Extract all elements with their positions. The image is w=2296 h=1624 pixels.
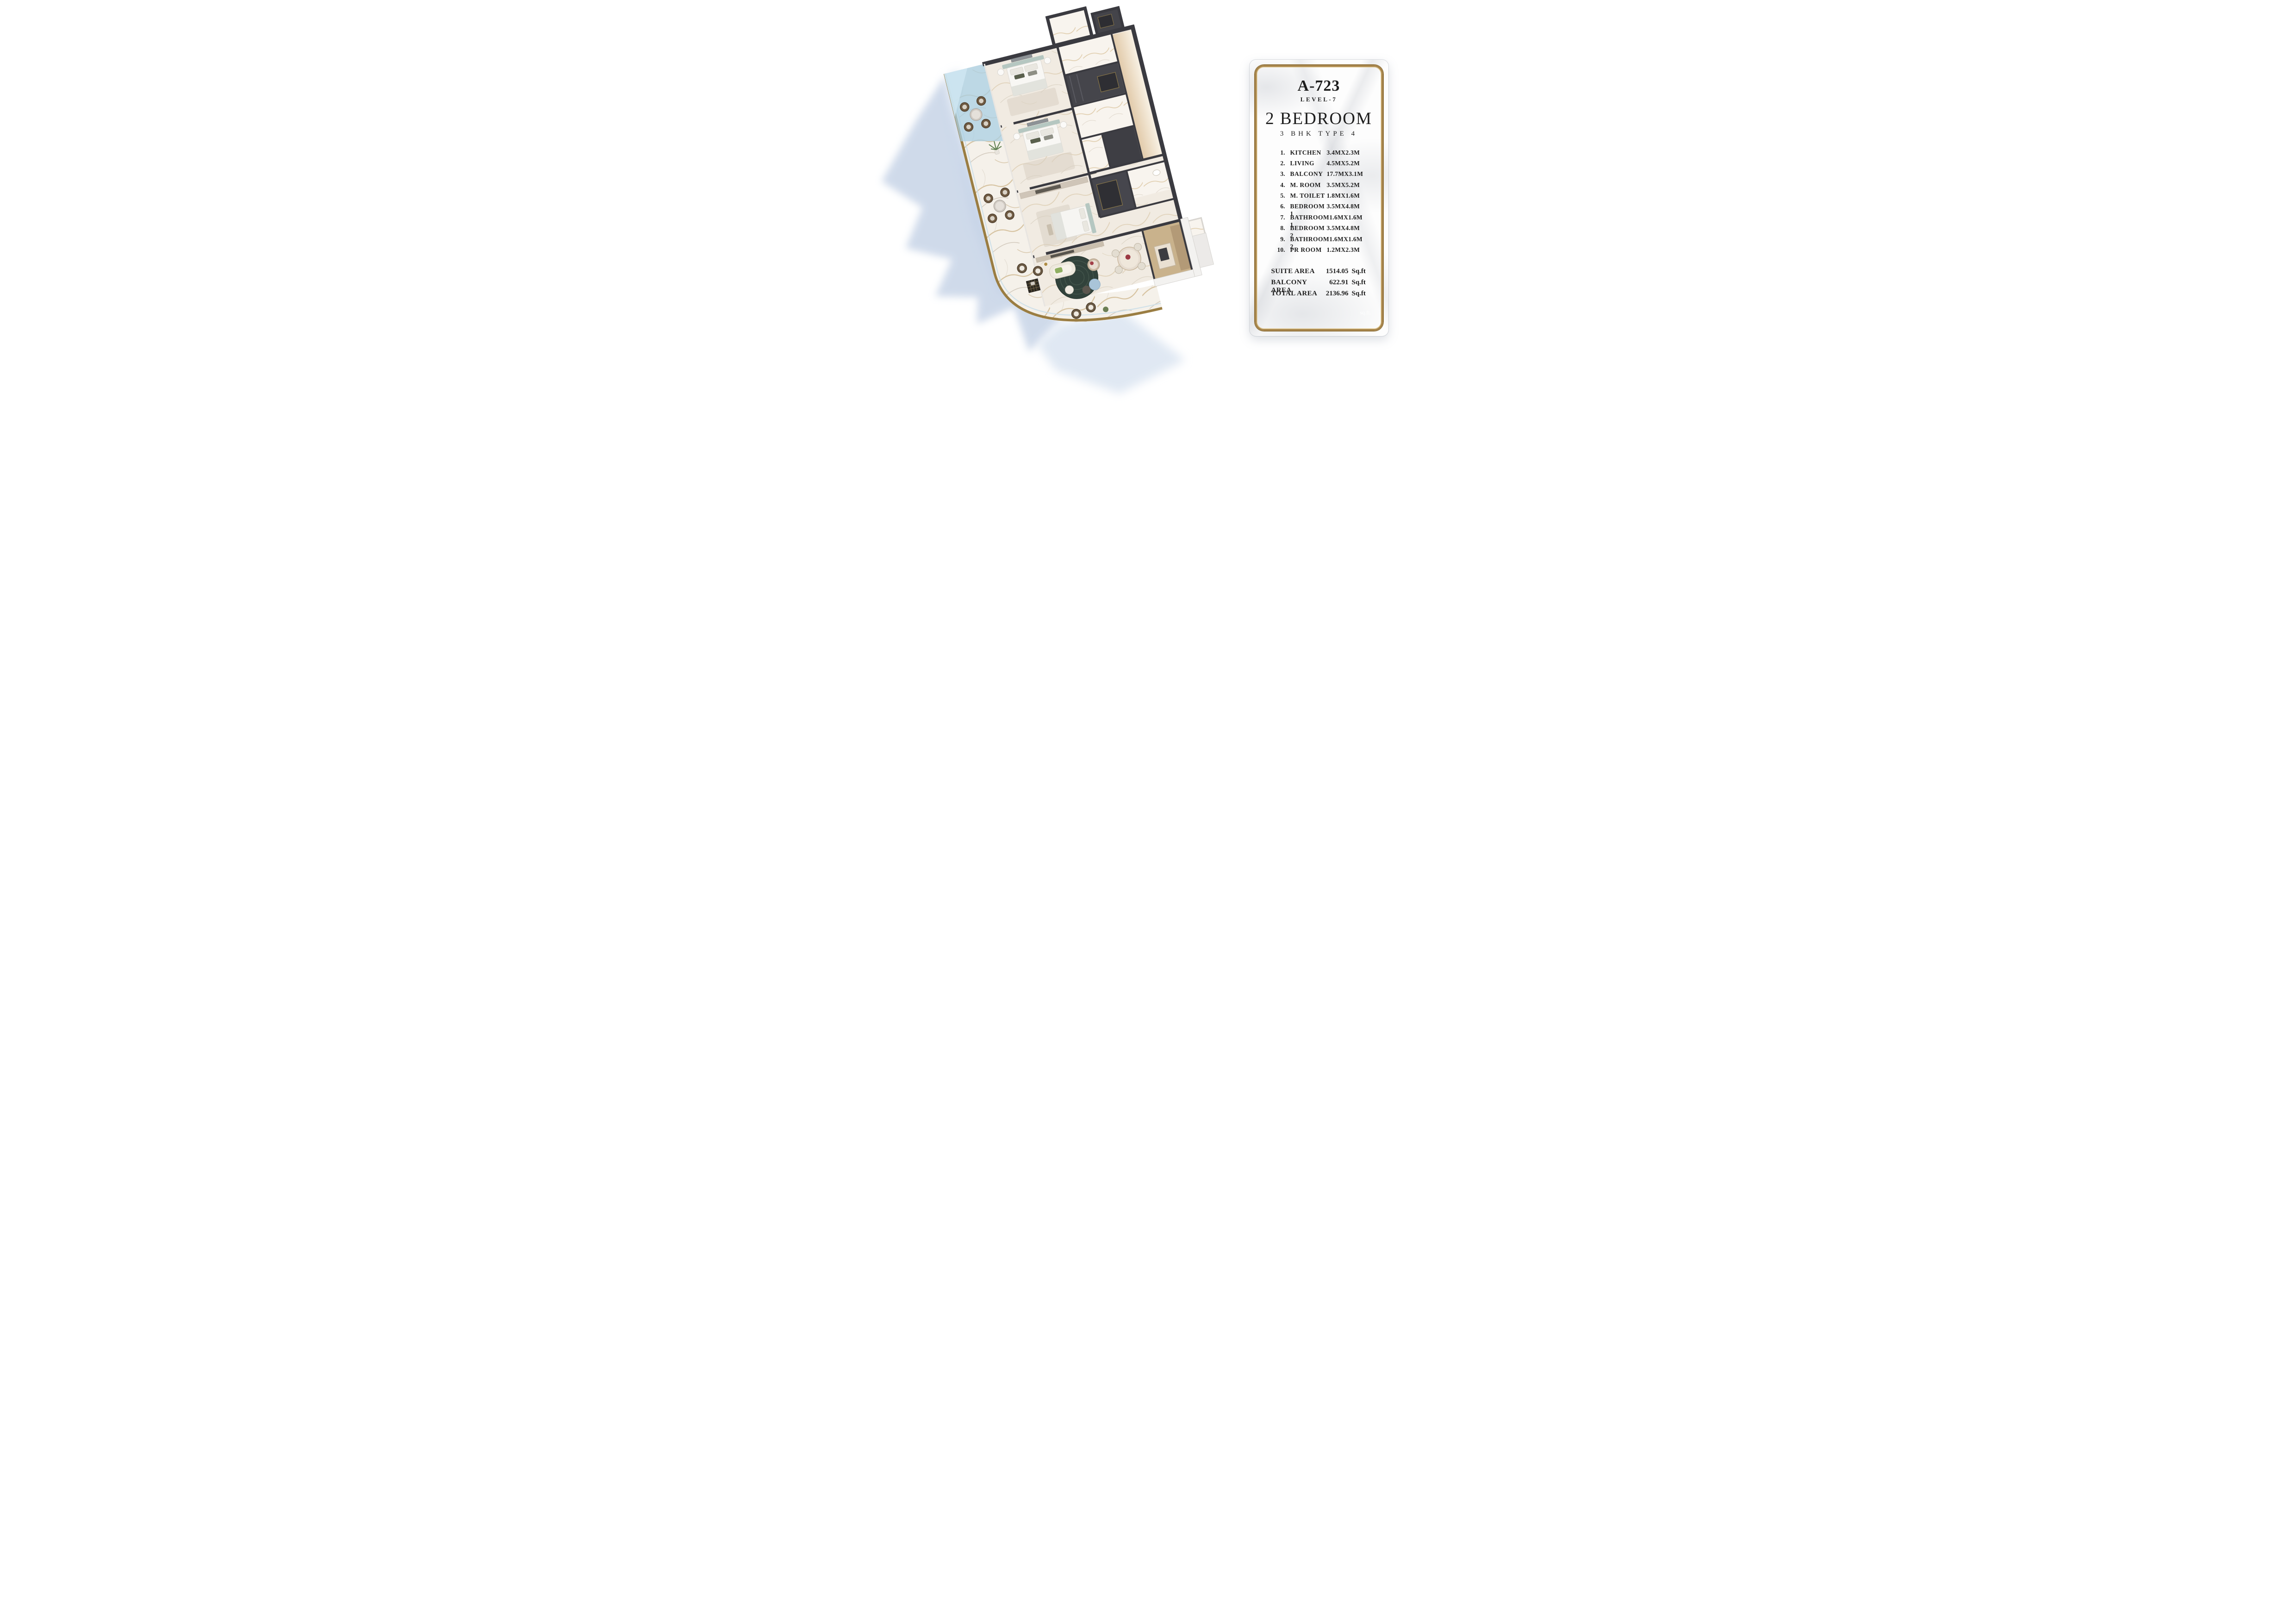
room-number: 7. (1275, 214, 1285, 221)
room-list: 1. KITCHEN 3.4MX2.3M 2. LIVING 4.5MX5.2M… (1257, 149, 1381, 257)
sqft-watermark: sq.ft. (1360, 309, 1371, 316)
room-row-bathroom-1: 7. BATHROOM 1 1.6MX1.6M (1275, 214, 1370, 225)
room-dimension: 1.8MX1.6M (1327, 192, 1370, 200)
room-dimension: 3.5MX5.2M (1327, 181, 1370, 189)
room-row-kitchen: 1. KITCHEN 3.4MX2.3M (1275, 149, 1370, 160)
area-unit: Sq.ft (1352, 268, 1370, 275)
room-row-m-room: 4. M. ROOM 3.5MX5.2M (1275, 181, 1370, 192)
room-row-balcony: 3. BALCONY 17.7MX3.1M (1275, 170, 1370, 181)
room-dimension: 4.5MX5.2M (1327, 160, 1370, 167)
total-area-row: TOTAL AREA 2136.96 Sq.ft (1271, 290, 1370, 301)
room-name: PR ROOM (1290, 246, 1327, 254)
room-dimension: 1.6MX1.6M (1329, 214, 1373, 221)
room-number: 6. (1275, 203, 1285, 210)
card-content: A-723 LEVEL-7 2 BEDROOM 3 BHK TYPE 4 1. … (1257, 67, 1381, 329)
room-row-pr-room: 10. PR ROOM 1.2MX2.3M (1275, 246, 1370, 257)
room-number: 9. (1275, 236, 1285, 243)
info-card: A-723 LEVEL-7 2 BEDROOM 3 BHK TYPE 4 1. … (1250, 60, 1388, 336)
floor-plan-render (861, 0, 1241, 406)
area-summary: SUITE AREA 1514.05 Sq.ft BALCONY AREA 62… (1257, 268, 1381, 301)
room-number: 8. (1275, 225, 1285, 232)
room-number: 3. (1275, 170, 1285, 178)
board-table (1026, 279, 1040, 293)
room-name: BALCONY (1290, 170, 1327, 178)
room-number: 1. (1275, 149, 1285, 156)
room-number: 2. (1275, 160, 1285, 167)
room-name: KITCHEN (1290, 149, 1327, 156)
area-unit: Sq.ft (1352, 290, 1370, 298)
room-number: 4. (1275, 181, 1285, 189)
page: A-723 LEVEL-7 2 BEDROOM 3 BHK TYPE 4 1. … (861, 0, 1435, 406)
room-number: 5. (1275, 192, 1285, 200)
room-dimension: 3.5MX4.8M (1327, 203, 1370, 210)
room-name: LIVING (1290, 160, 1327, 167)
area-label: TOTAL AREA (1271, 290, 1320, 298)
room-row-bedroom-2: 8. BEDROOM 2 3.5MX4.8M (1275, 225, 1370, 235)
area-unit: Sq.ft (1352, 279, 1370, 287)
area-value: 622.91 (1320, 279, 1349, 287)
room-dimension: 17.7MX3.1M (1327, 170, 1370, 178)
room-dimension: 1.2MX2.3M (1327, 246, 1370, 254)
area-label: SUITE AREA (1271, 268, 1320, 275)
room-dimension: 3.5MX4.8M (1327, 225, 1370, 232)
room-name: M. ROOM (1290, 181, 1327, 189)
room-row-m-toilet: 5. M. TOILET 1.8MX1.6M (1275, 192, 1370, 203)
balcony-area-row: BALCONY AREA 622.91 Sq.ft (1271, 279, 1370, 290)
area-value: 1514.05 (1320, 268, 1349, 275)
unit-level: LEVEL-7 (1257, 96, 1381, 103)
room-dimension: 3.4MX2.3M (1327, 149, 1370, 156)
room-row-living: 2. LIVING 4.5MX5.2M (1275, 160, 1370, 170)
unit-code: A-723 (1257, 78, 1381, 94)
room-name: M. TOILET (1290, 192, 1327, 200)
room-row-bedroom-1: 6. BEDROOM 1 3.5MX4.8M (1275, 203, 1370, 213)
area-value: 2136.96 (1320, 290, 1349, 298)
unit-type-title: 2 BEDROOM (1257, 110, 1381, 128)
unit-type-subtitle: 3 BHK TYPE 4 (1257, 130, 1381, 138)
suite-area-row: SUITE AREA 1514.05 Sq.ft (1271, 268, 1370, 279)
room-number: 10. (1275, 246, 1285, 254)
room-row-bathroom-2: 9. BATHROOM 2 1.6MX1.6M (1275, 236, 1370, 246)
room-dimension: 1.6MX1.6M (1329, 236, 1373, 243)
